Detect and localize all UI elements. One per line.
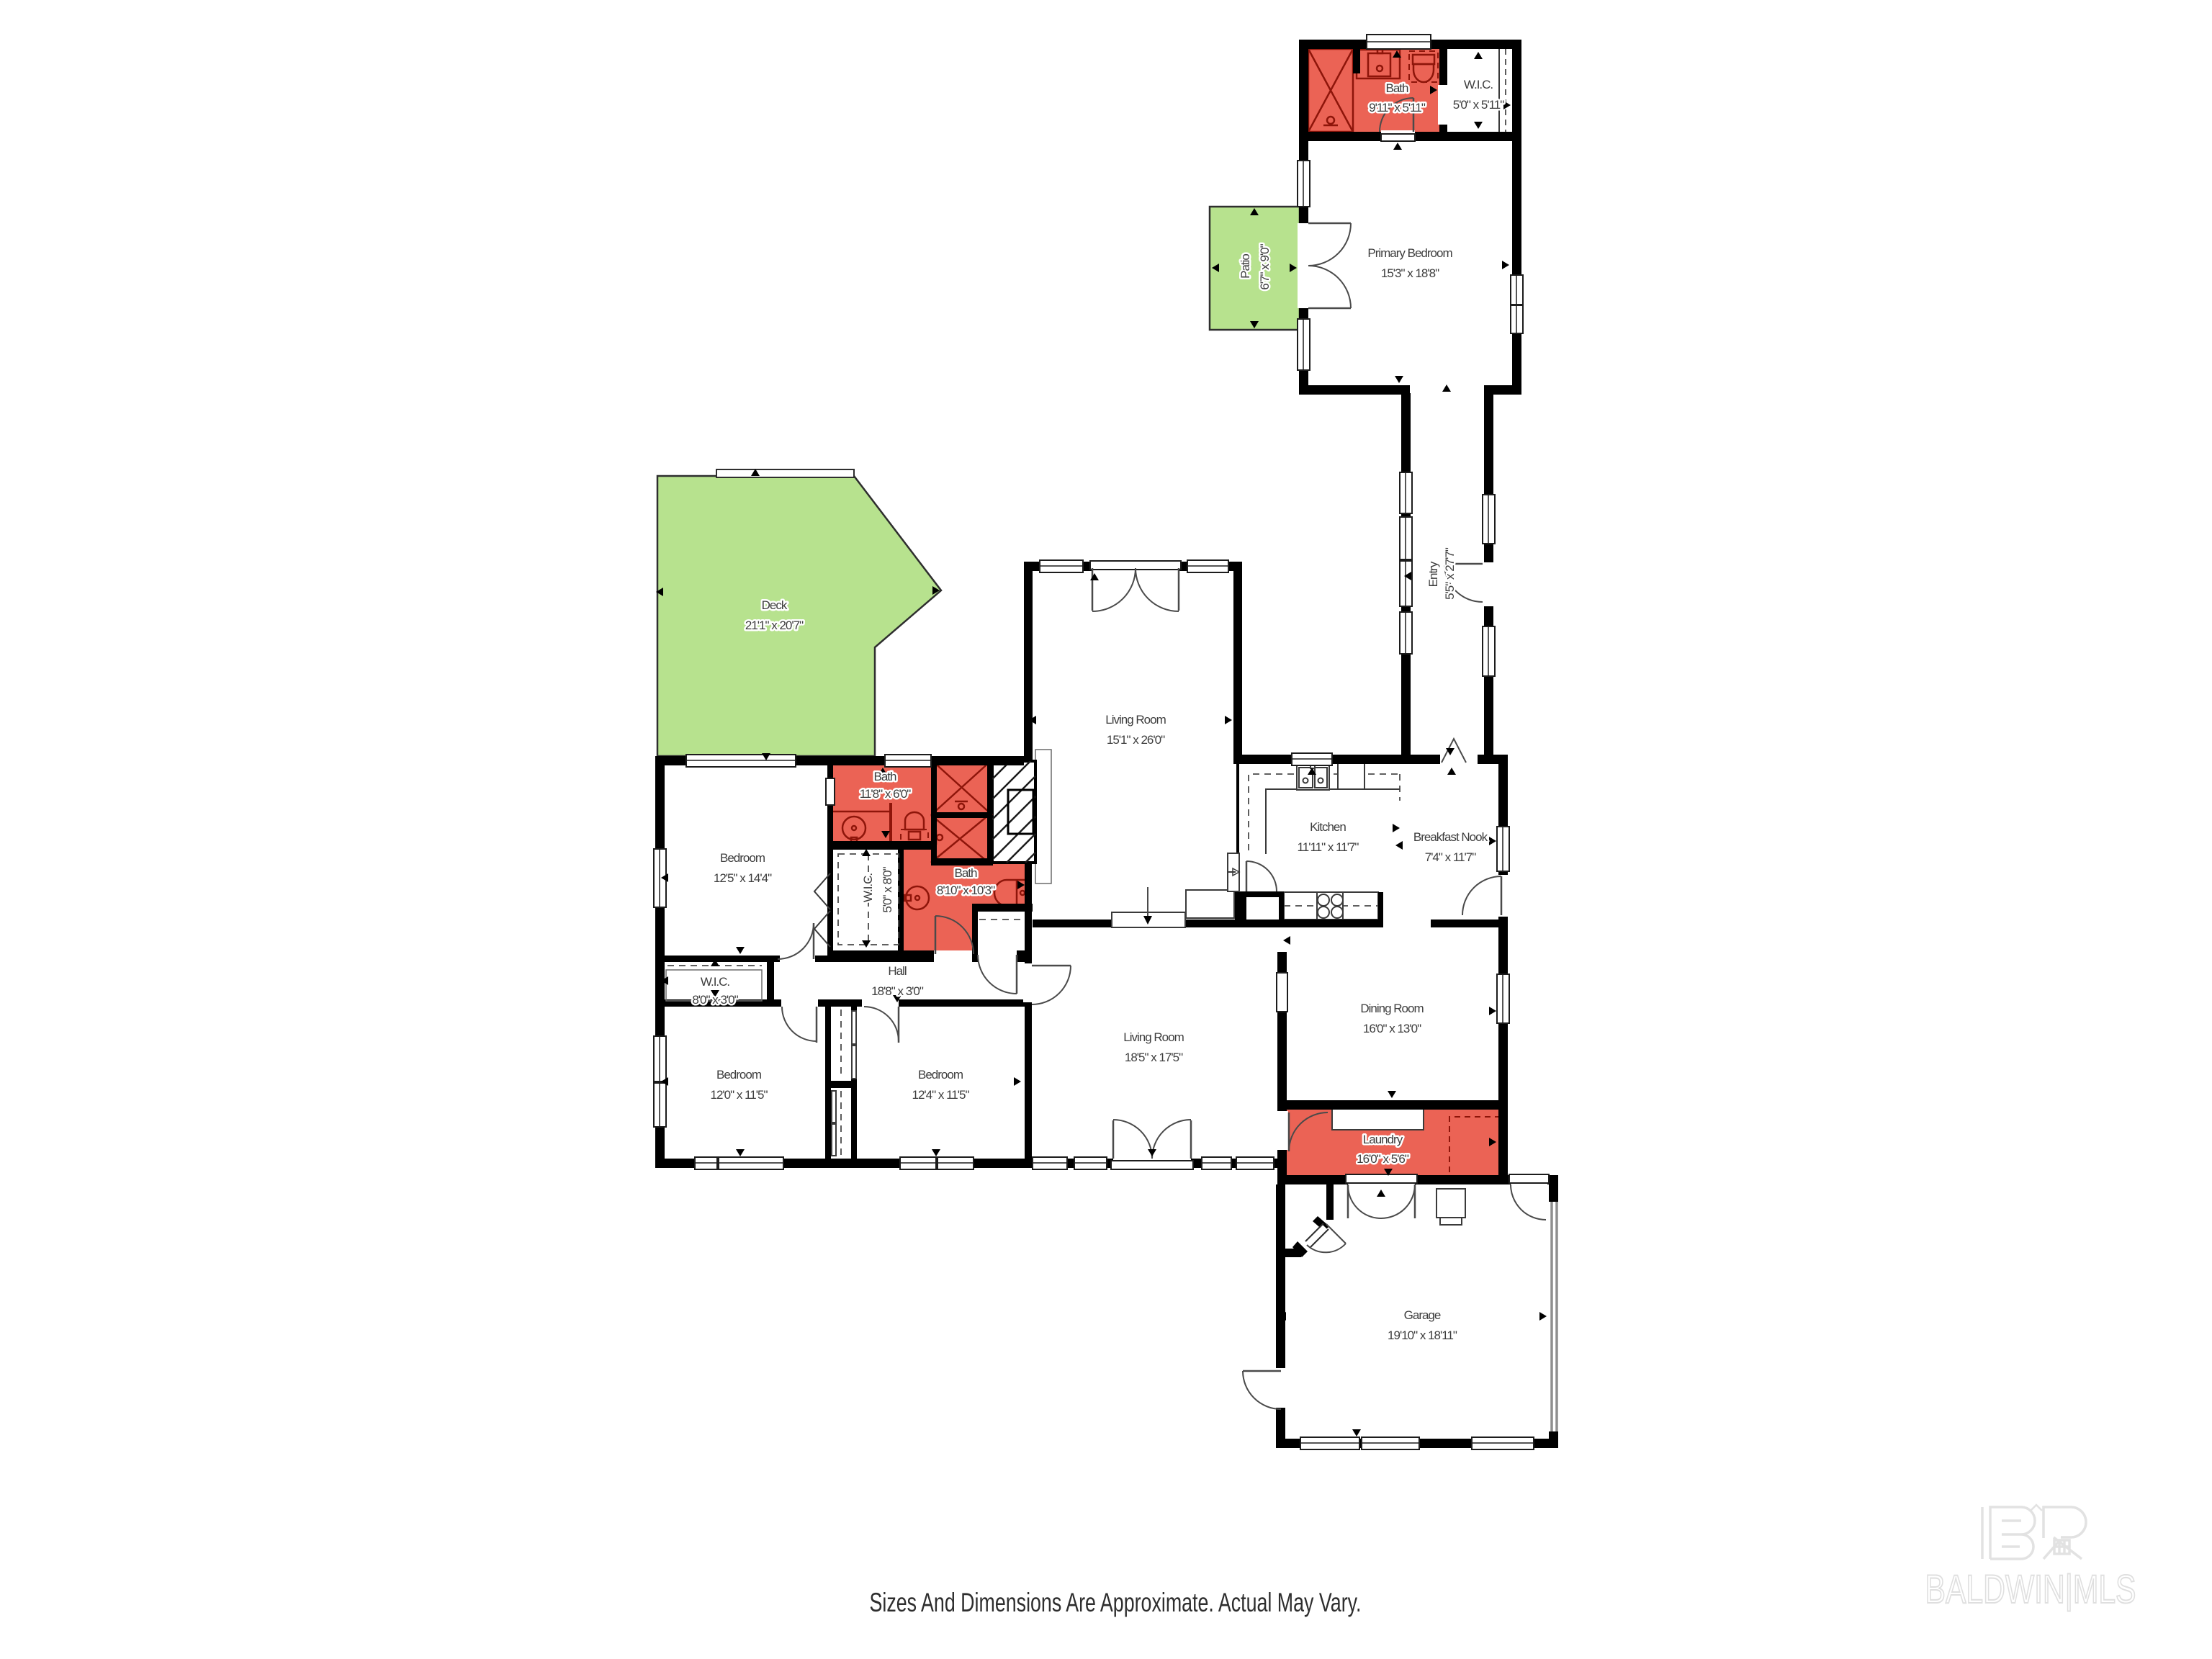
svg-text:Hall: Hall [888,964,907,978]
svg-text:Laundry: Laundry [1363,1133,1403,1146]
svg-text:BALDWIN|MLS: BALDWIN|MLS [1925,1566,2136,1611]
svg-text:16'0" x 5'6": 16'0" x 5'6" [1357,1152,1409,1166]
svg-text:11'11" x 11'7": 11'11" x 11'7" [1298,840,1359,854]
svg-text:Bath: Bath [955,866,978,880]
svg-text:12'4" x 11'5": 12'4" x 11'5" [912,1088,970,1102]
svg-text:Living Room: Living Room [1123,1030,1184,1044]
svg-text:11'8" x 6'0": 11'8" x 6'0" [860,787,911,801]
svg-text:18'5" x 17'5": 18'5" x 17'5" [1125,1051,1183,1064]
svg-text:W.I.C.: W.I.C. [701,975,730,989]
svg-text:7'4" x 11'7": 7'4" x 11'7" [1425,850,1476,864]
svg-text:Patio: Patio [1238,254,1252,279]
svg-text:Bedroom: Bedroom [720,851,765,865]
svg-text:Sizes And Dimensions Are Appro: Sizes And Dimensions Are Approximate. Ac… [870,1588,1362,1617]
svg-text:15'3" x 18'8": 15'3" x 18'8" [1381,266,1439,280]
svg-text:Bedroom: Bedroom [918,1068,963,1082]
svg-text:5'0" x 8'0": 5'0" x 8'0" [881,866,894,912]
svg-text:19'10" x 18'11": 19'10" x 18'11" [1388,1328,1457,1342]
svg-text:12'0" x 11'5": 12'0" x 11'5" [711,1088,768,1102]
svg-text:16'0" x 13'0": 16'0" x 13'0" [1363,1022,1421,1035]
svg-text:Deck: Deck [762,598,788,612]
svg-text:W.I.C.: W.I.C. [861,873,875,903]
svg-text:Living Room: Living Room [1105,713,1166,727]
svg-text:8'0" x 3'0": 8'0" x 3'0" [692,993,738,1007]
svg-text:18'8" x 3'0": 18'8" x 3'0" [871,984,924,998]
svg-text:15'1" x 26'0": 15'1" x 26'0" [1107,733,1165,747]
svg-text:8'10" x 10'3": 8'10" x 10'3" [937,884,995,897]
svg-text:21'1" x 20'7": 21'1" x 20'7" [745,619,804,632]
svg-text:Breakfast Nook: Breakfast Nook [1413,830,1488,844]
svg-text:6'7" x 9'0": 6'7" x 9'0" [1258,243,1272,289]
svg-text:Primary Bedroom: Primary Bedroom [1367,246,1452,260]
svg-text:Garage: Garage [1404,1308,1441,1322]
svg-text:5'5" x 27'7": 5'5" x 27'7" [1443,547,1457,600]
svg-text:5'0" x 5'11": 5'0" x 5'11" [1453,98,1504,112]
svg-text:Bedroom: Bedroom [716,1068,762,1082]
svg-text:12'5" x 14'4": 12'5" x 14'4" [714,871,772,885]
svg-text:Entry: Entry [1426,561,1440,587]
svg-text:Kitchen: Kitchen [1310,820,1346,834]
svg-text:9'11" x 5'11": 9'11" x 5'11" [1369,101,1426,114]
svg-text:Bath: Bath [1386,81,1409,95]
svg-text:Dining Room: Dining Room [1360,1002,1424,1015]
svg-text:Bath: Bath [874,770,897,783]
svg-text:W.I.C.: W.I.C. [1464,78,1493,91]
